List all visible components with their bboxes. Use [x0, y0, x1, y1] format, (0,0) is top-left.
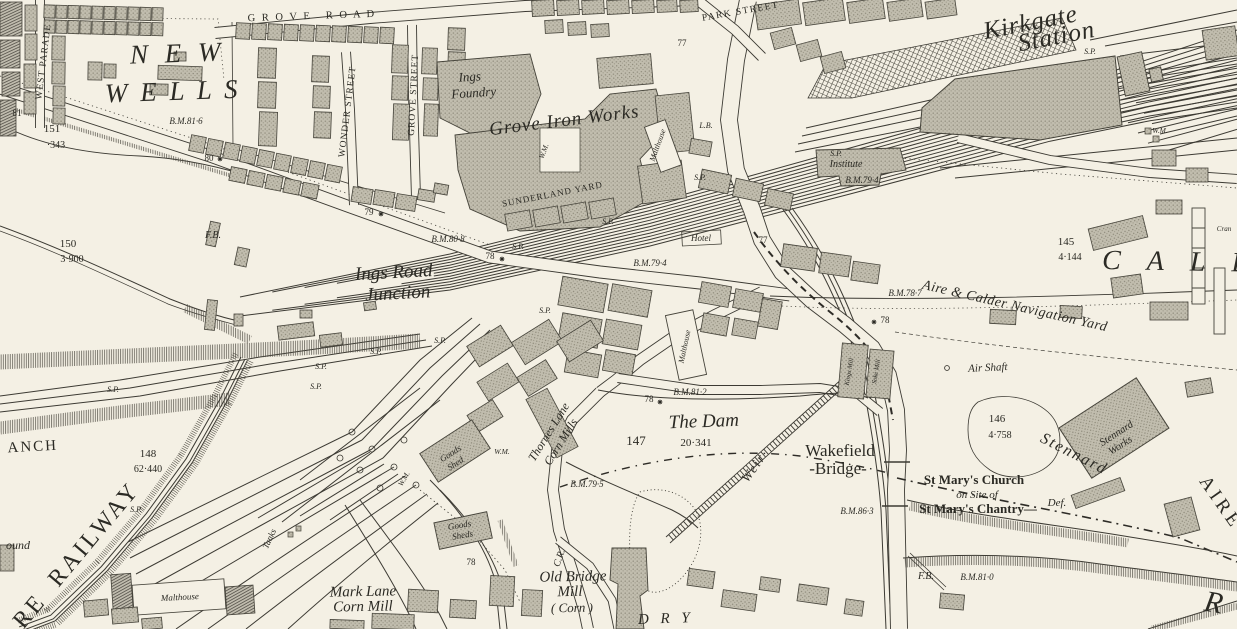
svg-text:62·440: 62·440 [134, 464, 162, 475]
svg-text:D R Y: D R Y [637, 610, 694, 628]
svg-text:The Dam: The Dam [668, 410, 739, 433]
svg-text:S.P.: S.P. [512, 242, 524, 251]
svg-text:78: 78 [486, 251, 496, 261]
svg-text:Air Shaft: Air Shaft [967, 361, 1009, 375]
svg-text:·343: ·343 [47, 140, 65, 151]
svg-text:78: 78 [645, 394, 655, 404]
svg-text:151: 151 [44, 123, 61, 135]
svg-text:150: 150 [60, 238, 77, 250]
svg-text:20·341: 20·341 [680, 437, 711, 449]
svg-text:W.M.: W.M. [1152, 126, 1168, 135]
svg-text:S.P.: S.P. [310, 382, 322, 391]
svg-text:B.M.80·8: B.M.80·8 [431, 234, 465, 244]
svg-text:77: 77 [759, 235, 769, 245]
svg-text:on Site of: on Site of [956, 489, 999, 501]
svg-text:Corn Mill: Corn Mill [333, 598, 393, 615]
svg-text:Malthouse: Malthouse [160, 591, 199, 603]
svg-text:3·900: 3·900 [60, 254, 83, 265]
svg-text:B.M.79·4: B.M.79·4 [633, 258, 667, 268]
svg-text:Wakefield: Wakefield [805, 441, 875, 460]
svg-text:S.P.: S.P. [107, 385, 119, 394]
svg-text:ound: ound [6, 538, 31, 552]
svg-text:Junction: Junction [364, 281, 430, 305]
svg-text:St Mary's Chantry—: St Mary's Chantry— [919, 501, 1038, 516]
svg-text:B.M.81·6: B.M.81·6 [169, 116, 203, 126]
svg-text:4·144: 4·144 [1058, 252, 1081, 263]
svg-text:79: 79 [365, 207, 375, 217]
svg-text:Foundry: Foundry [450, 83, 497, 101]
svg-text:81: 81 [13, 108, 22, 118]
svg-text:S.P.: S.P. [315, 362, 327, 371]
svg-text:St Mary's Church: St Mary's Church [924, 472, 1025, 487]
svg-text:B.M.81·0: B.M.81·0 [960, 572, 994, 582]
svg-text:S.P.: S.P. [130, 505, 142, 514]
svg-text:Mill: Mill [556, 584, 582, 600]
svg-text:78: 78 [467, 557, 477, 567]
svg-text:S.P.: S.P. [539, 306, 551, 315]
svg-text:B.M.79·5: B.M.79·5 [570, 479, 604, 489]
svg-text:4·758: 4·758 [988, 430, 1011, 441]
svg-text:B.M.78·7: B.M.78·7 [888, 288, 922, 298]
svg-text:W.M.: W.M. [494, 447, 510, 456]
svg-text:77: 77 [678, 38, 688, 48]
svg-text:S.P.: S.P. [830, 149, 842, 158]
svg-text:Cran: Cran [1217, 225, 1232, 233]
svg-text:78: 78 [881, 315, 891, 325]
svg-text:( Corn ): ( Corn ) [551, 600, 593, 616]
svg-text:CALD: CALD [1102, 245, 1237, 279]
svg-text:L.B.: L.B. [698, 121, 712, 130]
svg-text:F.B.: F.B. [204, 230, 221, 241]
svg-text:S.P.: S.P. [602, 217, 614, 226]
svg-text:ANCH: ANCH [7, 438, 58, 457]
svg-text:80: 80 [205, 153, 215, 163]
svg-text:-Bridge-: -Bridge- [809, 459, 867, 478]
svg-text:W E L L S: W E L L S [104, 74, 241, 109]
svg-text:B.M.81·2: B.M.81·2 [673, 387, 707, 397]
svg-text:146: 146 [989, 413, 1006, 425]
svg-text:F.B.: F.B. [917, 571, 934, 582]
svg-text:147: 147 [626, 433, 646, 448]
svg-text:S.P.: S.P. [434, 336, 446, 345]
svg-text:B.M.86·3: B.M.86·3 [840, 506, 874, 516]
svg-text:S.P.: S.P. [1084, 47, 1096, 56]
svg-text:S.P.: S.P. [370, 347, 382, 356]
svg-text:145: 145 [1058, 236, 1075, 248]
svg-text:Institute: Institute [829, 159, 863, 170]
svg-text:Hotel: Hotel [690, 233, 711, 243]
svg-text:N E W: N E W [128, 36, 225, 69]
svg-text:148: 148 [140, 448, 157, 460]
svg-text:S.P.: S.P. [694, 173, 706, 182]
svg-text:B.M.79·4: B.M.79·4 [845, 175, 879, 185]
svg-text:Def.: Def. [1047, 497, 1067, 509]
svg-text:Ings: Ings [457, 68, 481, 85]
